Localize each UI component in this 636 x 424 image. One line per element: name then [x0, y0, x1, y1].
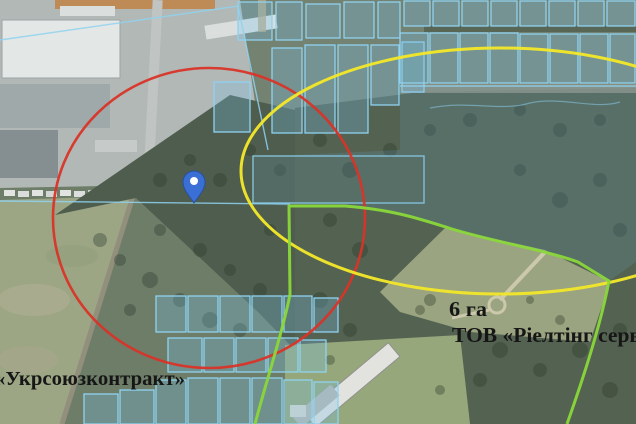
- label-left-company: «Укрсоюзконтракт»: [0, 368, 185, 390]
- satellite-map[interactable]: «Укрсоюзконтракт» 6 га ТОВ «Ріелтінг сер…: [0, 0, 636, 424]
- parcel-grid-top-right: [400, 1, 635, 83]
- label-plot-area: 6 га: [449, 297, 488, 321]
- label-right-company: ТОВ «Ріелтінг серві: [452, 323, 636, 347]
